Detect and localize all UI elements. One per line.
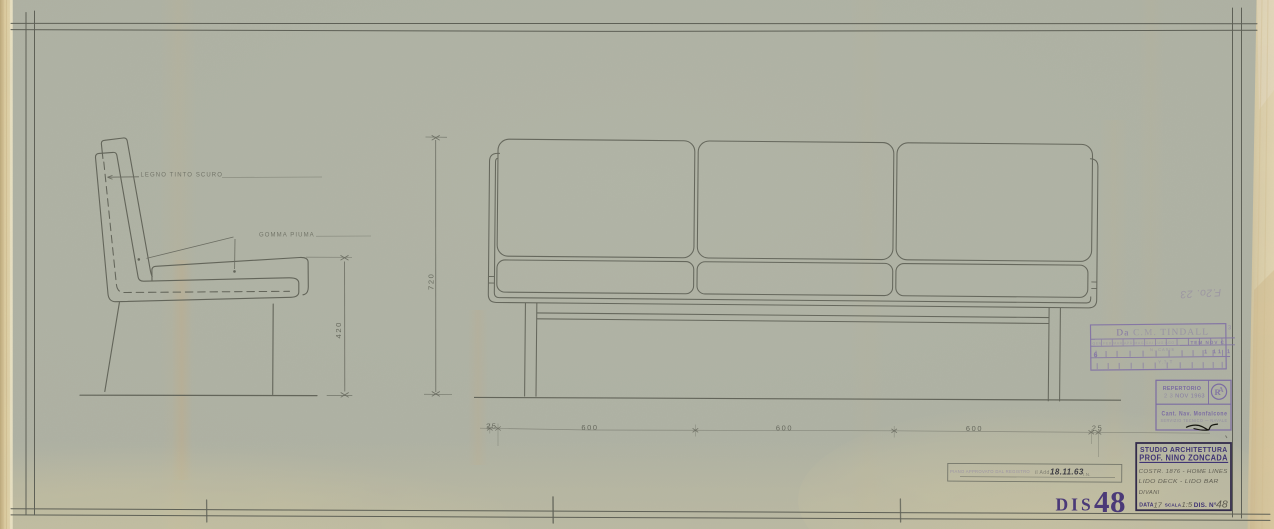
svg-text:600: 600 <box>776 424 793 433</box>
svg-text:720: 720 <box>427 273 436 290</box>
svg-text:F.2o. 23: F.2o. 23 <box>1180 286 1222 300</box>
svg-text:LEGNO TINTO SCURO: LEGNO TINTO SCURO <box>141 173 224 179</box>
svg-text:TEM NOV C: TEM NOV C <box>1190 340 1225 345</box>
svg-text:1 11 1: 1 11 1 <box>1204 349 1232 355</box>
svg-text:SERVIZIO TECNICO — NAVALE: SERVIZIO TECNICO — NAVALE <box>1161 418 1228 423</box>
svg-text:25: 25 <box>486 421 497 430</box>
svg-text:DIVANI: DIVANI <box>1139 490 1160 496</box>
svg-text:48: 48 <box>1094 484 1126 519</box>
svg-text:LIDO DECK - LIDO BAR: LIDO DECK - LIDO BAR <box>1139 479 1220 485</box>
svg-text:25: 25 <box>1092 424 1103 433</box>
svg-text:N. CASIE: N. CASIE <box>1150 347 1175 352</box>
svg-text:Y.?.T: Y.?.T <box>1158 359 1173 364</box>
svg-text:SCALA: SCALA <box>1165 502 1182 507</box>
svg-text:A: A <box>1219 386 1224 394</box>
svg-text:PIANO APPROVATO DAL REGISTRO: PIANO APPROVATO DAL REGISTRO <box>950 469 1030 474</box>
svg-text:6: 6 <box>1094 352 1098 359</box>
svg-text:17: 17 <box>1154 501 1163 510</box>
svg-text:DIS: DIS <box>1056 495 1094 515</box>
svg-text:STUDIO ARCHITETTURA: STUDIO ARCHITETTURA <box>1140 445 1228 454</box>
svg-text:PROF. NINO ZONCADA: PROF. NINO ZONCADA <box>1139 454 1228 463</box>
svg-text:DIS. N°: DIS. N° <box>1194 501 1217 509</box>
svg-text:18.11.63: 18.11.63 <box>1050 468 1084 477</box>
svg-text:Cant. Nav. Monfalcone: Cant. Nav. Monfalcone <box>1162 411 1228 417</box>
svg-text:48: 48 <box>1216 499 1228 511</box>
svg-text:il Add.: il Add. <box>1035 470 1051 476</box>
svg-text:COSTR. 1876 - HOME LINES: COSTR. 1876 - HOME LINES <box>1139 469 1228 475</box>
svg-text:1:5: 1:5 <box>1182 500 1193 509</box>
svg-text:2 3 NOV 1963: 2 3 NOV 1963 <box>1164 394 1205 400</box>
svg-text:600: 600 <box>581 423 598 432</box>
svg-text:REPERTORIO: REPERTORIO <box>1163 386 1202 392</box>
svg-text:420: 420 <box>334 321 343 338</box>
svg-text:GOMMA PIUMA: GOMMA PIUMA <box>259 233 315 239</box>
svg-text:600: 600 <box>966 424 983 433</box>
svg-text:DATA: DATA <box>1139 502 1153 508</box>
svg-text:I.N.: I.N. <box>1083 472 1090 478</box>
